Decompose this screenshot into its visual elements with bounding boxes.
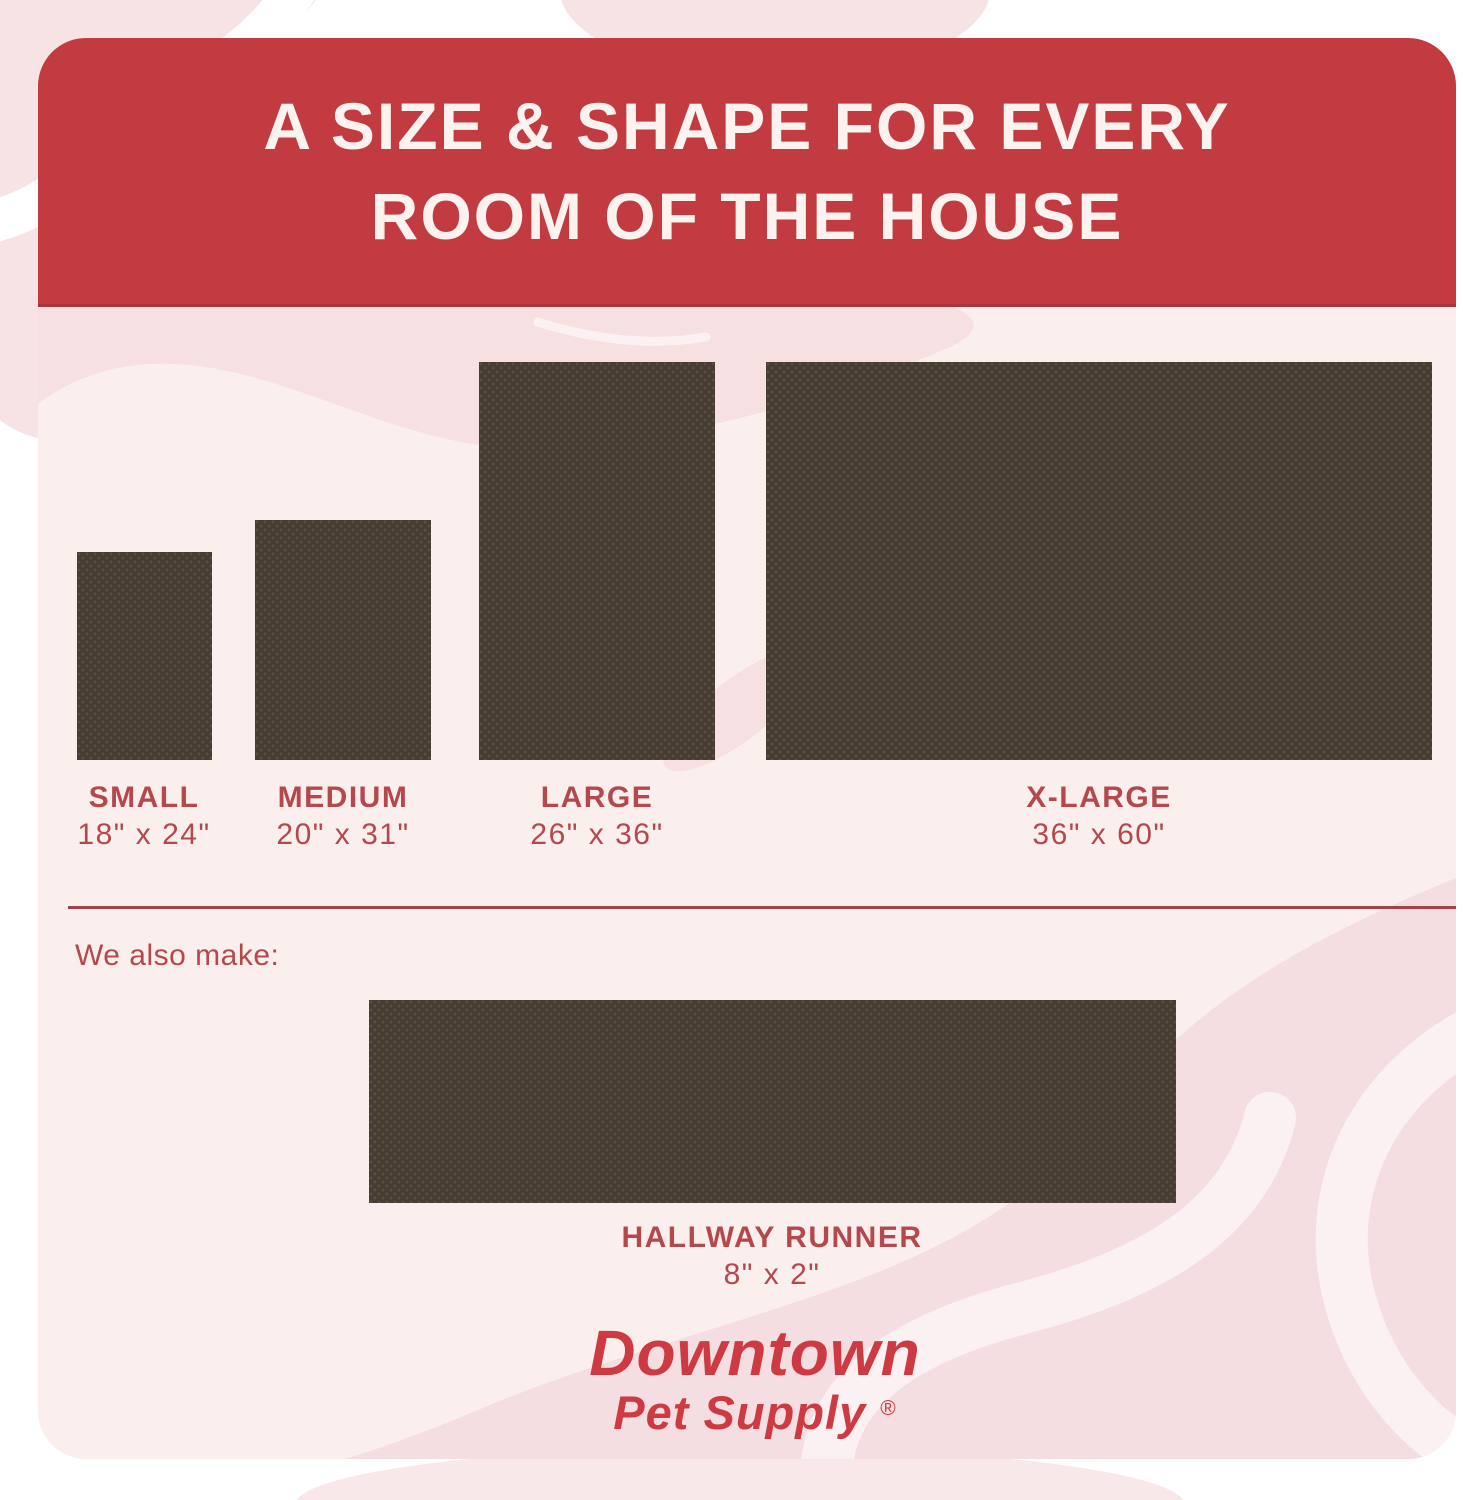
- section-divider: [68, 906, 1456, 909]
- size-label-large: LARGE 26" x 36": [530, 779, 663, 853]
- size-name: MEDIUM: [276, 779, 409, 816]
- size-label-hallway-runner: HALLWAY RUNNER 8" x 2": [621, 1219, 922, 1293]
- size-dimensions: 36" x 60": [1026, 816, 1172, 853]
- rug-swatch-medium: [255, 520, 431, 760]
- size-label-medium: MEDIUM 20" x 31": [276, 779, 409, 853]
- size-dimensions: 18" x 24": [77, 816, 210, 853]
- rug-swatch-large: [479, 362, 715, 760]
- rug-swatch-x-large: [766, 362, 1432, 760]
- size-name: LARGE: [530, 779, 663, 816]
- brand-logo: Downtown Pet Supply ®: [589, 1322, 920, 1438]
- brand-subtitle-text: Pet Supply: [613, 1386, 866, 1439]
- brand-name: Downtown: [589, 1322, 920, 1384]
- size-label-x-large: X-LARGE 36" x 60": [1026, 779, 1172, 853]
- infographic-card: A SIZE & SHAPE FOR EVERY ROOM OF THE HOU…: [38, 38, 1456, 1459]
- registered-trademark-icon: ®: [880, 1397, 896, 1420]
- page-title-line-1: A SIZE & SHAPE FOR EVERY: [263, 81, 1230, 171]
- rug-swatch-small: [77, 552, 212, 760]
- size-dimensions: 8" x 2": [621, 1256, 922, 1293]
- size-name: X-LARGE: [1026, 779, 1172, 816]
- size-dimensions: 26" x 36": [530, 816, 663, 853]
- size-dimensions: 20" x 31": [276, 816, 409, 853]
- also-make-label: We also make:: [75, 939, 279, 973]
- brand-subtitle: Pet Supply ®: [589, 1384, 920, 1438]
- infographic-page: A SIZE & SHAPE FOR EVERY ROOM OF THE HOU…: [0, 0, 1463, 1500]
- page-title-line-2: ROOM OF THE HOUSE: [371, 171, 1124, 261]
- rug-swatch-hallway-runner: [369, 1000, 1176, 1203]
- size-name: SMALL: [77, 779, 210, 816]
- size-label-small: SMALL 18" x 24": [77, 779, 210, 853]
- size-name: HALLWAY RUNNER: [621, 1219, 922, 1256]
- header-banner: A SIZE & SHAPE FOR EVERY ROOM OF THE HOU…: [38, 38, 1456, 307]
